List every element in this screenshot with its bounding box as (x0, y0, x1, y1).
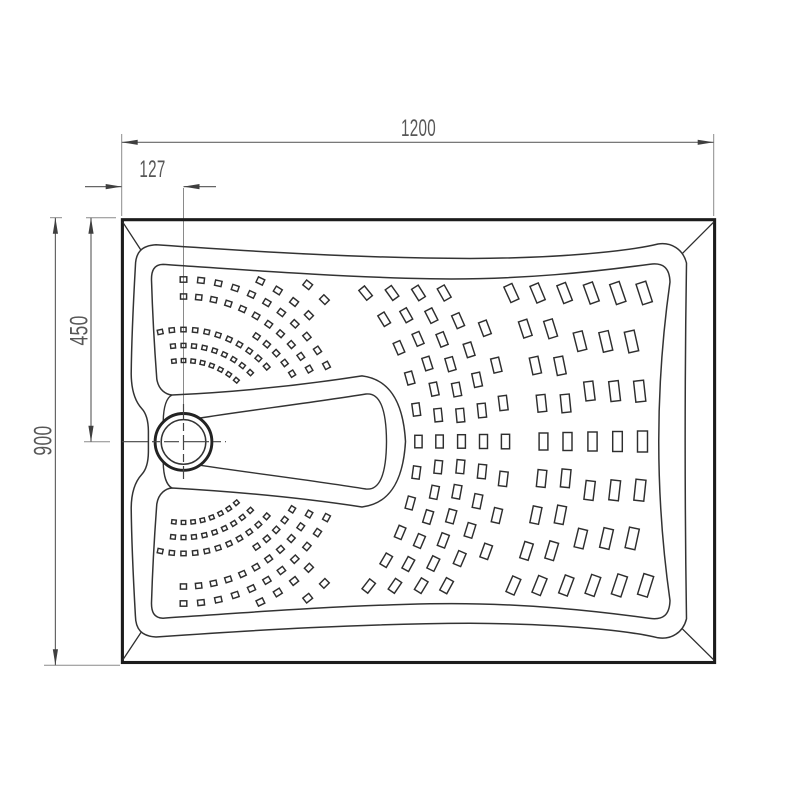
svg-text:1200: 1200 (401, 116, 436, 142)
svg-text:900: 900 (28, 425, 57, 455)
svg-text:127: 127 (139, 157, 165, 183)
svg-text:450: 450 (64, 315, 93, 345)
